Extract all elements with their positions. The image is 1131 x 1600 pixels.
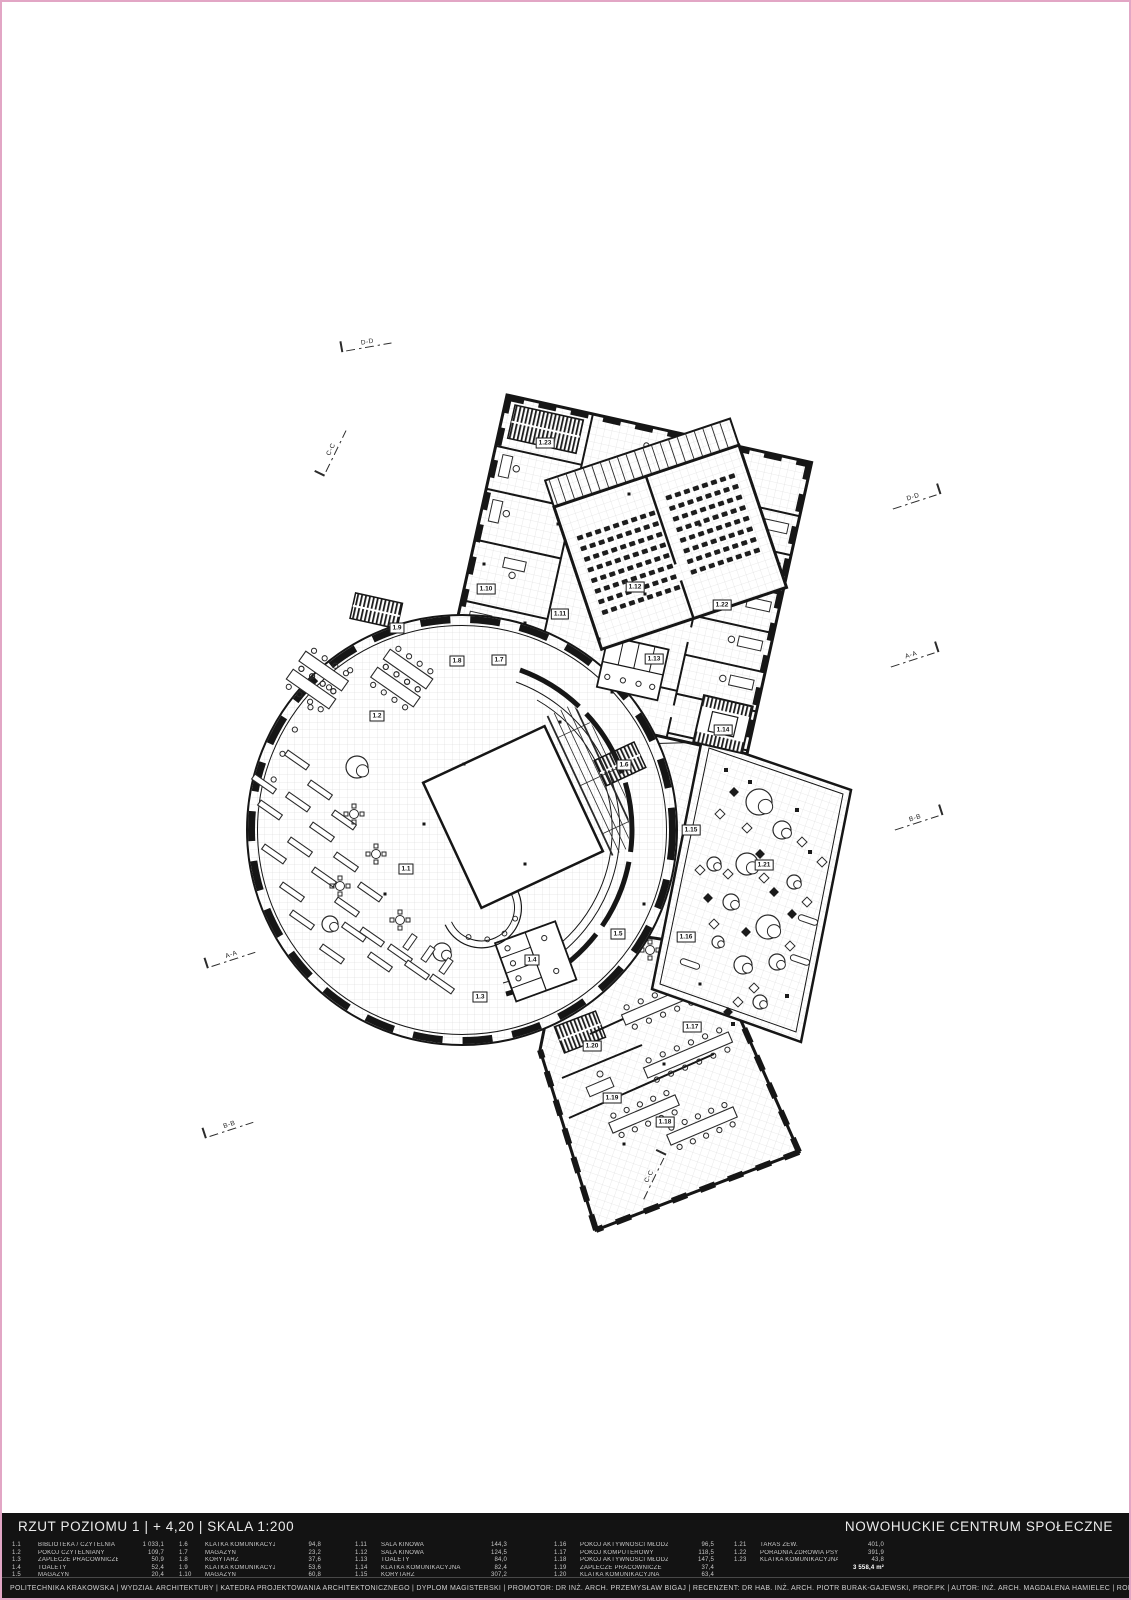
legend-entry: 1.6KLATKA KOMUNIKACYJNA94,8 bbox=[179, 1542, 321, 1550]
room-label-1.9: 1.9 bbox=[389, 623, 404, 634]
room-label-1.18: 1.18 bbox=[656, 1117, 675, 1128]
floor-plan-drawing bbox=[2, 2, 1131, 1600]
legend-entry: 1.19ZAPLECZE PRACOWNICZE37,4 bbox=[554, 1565, 714, 1573]
room-label-1.10: 1.10 bbox=[477, 584, 496, 595]
legend-entry: 1.16POKÓJ AKTYWNOŚCI MŁODZIEŻY96,5 bbox=[554, 1542, 714, 1550]
room-label-1.14: 1.14 bbox=[714, 725, 733, 736]
room-label-1.17: 1.17 bbox=[683, 1022, 702, 1033]
legend-total: 3 558,4 m² bbox=[734, 1565, 884, 1573]
legend-entry: 1.13TOALETY84,0 bbox=[355, 1557, 507, 1565]
legend-entry: 1.14KLATKA KOMUNIKACYJNA82,4 bbox=[355, 1565, 507, 1573]
legend-entry: 1.1BIBLIOTEKA / CZYTELNIA1 033,1 bbox=[12, 1542, 164, 1550]
legend-entry: 1.7MAGAZYN23,2 bbox=[179, 1550, 321, 1558]
title-block: RZUT POZIOMU 1 | + 4,20 | SKALA 1:200 NO… bbox=[2, 1513, 1129, 1598]
legend-entry: 1.8KORYTARZ37,6 bbox=[179, 1557, 321, 1565]
room-label-1.7: 1.7 bbox=[491, 655, 506, 666]
project-title: NOWOHUCKIE CENTRUM SPOŁECZNE bbox=[845, 1519, 1113, 1534]
room-label-1.2: 1.2 bbox=[369, 711, 384, 722]
drawing-sheet: 1.11.21.31.41.51.61.71.81.91.101.111.121… bbox=[0, 0, 1131, 1600]
room-legend: 1.1BIBLIOTEKA / CZYTELNIA1 033,11.2POKÓJ… bbox=[2, 1540, 1129, 1582]
room-label-1.22: 1.22 bbox=[713, 600, 732, 611]
legend-column: 1.16POKÓJ AKTYWNOŚCI MŁODZIEŻY96,51.17PO… bbox=[554, 1542, 714, 1580]
legend-entry: 1.12SALA KINOWA124,5 bbox=[355, 1550, 507, 1558]
legend-entry: 1.17POKÓJ KOMPUTEROWY118,5 bbox=[554, 1550, 714, 1558]
room-label-1.11: 1.11 bbox=[551, 609, 569, 620]
room-label-1.23: 1.23 bbox=[536, 438, 555, 449]
legend-column: 1.1BIBLIOTEKA / CZYTELNIA1 033,11.2POKÓJ… bbox=[12, 1542, 164, 1580]
room-label-1.21: 1.21 bbox=[755, 860, 774, 871]
room-label-1.20: 1.20 bbox=[583, 1041, 602, 1052]
titlebar: RZUT POZIOMU 1 | + 4,20 | SKALA 1:200 NO… bbox=[2, 1513, 1129, 1539]
room-label-1.19: 1.19 bbox=[603, 1093, 622, 1104]
room-label-1.13: 1.13 bbox=[645, 654, 664, 665]
room-label-1.6: 1.6 bbox=[616, 760, 631, 771]
room-label-1.5: 1.5 bbox=[610, 929, 625, 940]
legend-column: 1.11SALA KINOWA144,31.12SALA KINOWA124,5… bbox=[355, 1542, 507, 1580]
drawing-title: RZUT POZIOMU 1 | + 4,20 | SKALA 1:200 bbox=[18, 1519, 294, 1534]
room-label-1.8: 1.8 bbox=[449, 656, 464, 667]
room-label-1.15: 1.15 bbox=[682, 825, 701, 836]
legend-entry: 1.23KLATKA KOMUNIKACYJNA43,8 bbox=[734, 1557, 884, 1565]
legend-entry: 1.11SALA KINOWA144,3 bbox=[355, 1542, 507, 1550]
credits-line: POLITECHNIKA KRAKOWSKA | WYDZIAŁ ARCHITE… bbox=[2, 1577, 1129, 1598]
legend-column: 1.21TARAS ZEW.401,01.22PORADNIA ZDROWIA … bbox=[734, 1542, 884, 1572]
room-label-1.4: 1.4 bbox=[524, 955, 539, 966]
legend-entry: 1.9KLATKA KOMUNIKACYJNA53,6 bbox=[179, 1565, 321, 1573]
legend-entry: 1.18POKÓJ AKTYWNOŚCI MŁODZIEŻY147,5 bbox=[554, 1557, 714, 1565]
legend-entry: 1.21TARAS ZEW.401,0 bbox=[734, 1542, 884, 1550]
room-label-1.12: 1.12 bbox=[626, 582, 645, 593]
room-label-1.1: 1.1 bbox=[398, 864, 413, 875]
legend-entry: 1.3ZAPLECZE PRACOWNICZE50,9 bbox=[12, 1557, 164, 1565]
room-label-1.3: 1.3 bbox=[472, 992, 487, 1003]
legend-entry: 1.2POKÓJ CZYTELNIANY109,7 bbox=[12, 1550, 164, 1558]
legend-column: 1.6KLATKA KOMUNIKACYJNA94,81.7MAGAZYN23,… bbox=[179, 1542, 321, 1580]
legend-entry: 1.4TOALETY52,4 bbox=[12, 1565, 164, 1573]
room-label-1.16: 1.16 bbox=[677, 932, 696, 943]
legend-entry: 1.22PORADNIA ZDROWIA PSYCHICZNEGO391,9 bbox=[734, 1550, 884, 1558]
